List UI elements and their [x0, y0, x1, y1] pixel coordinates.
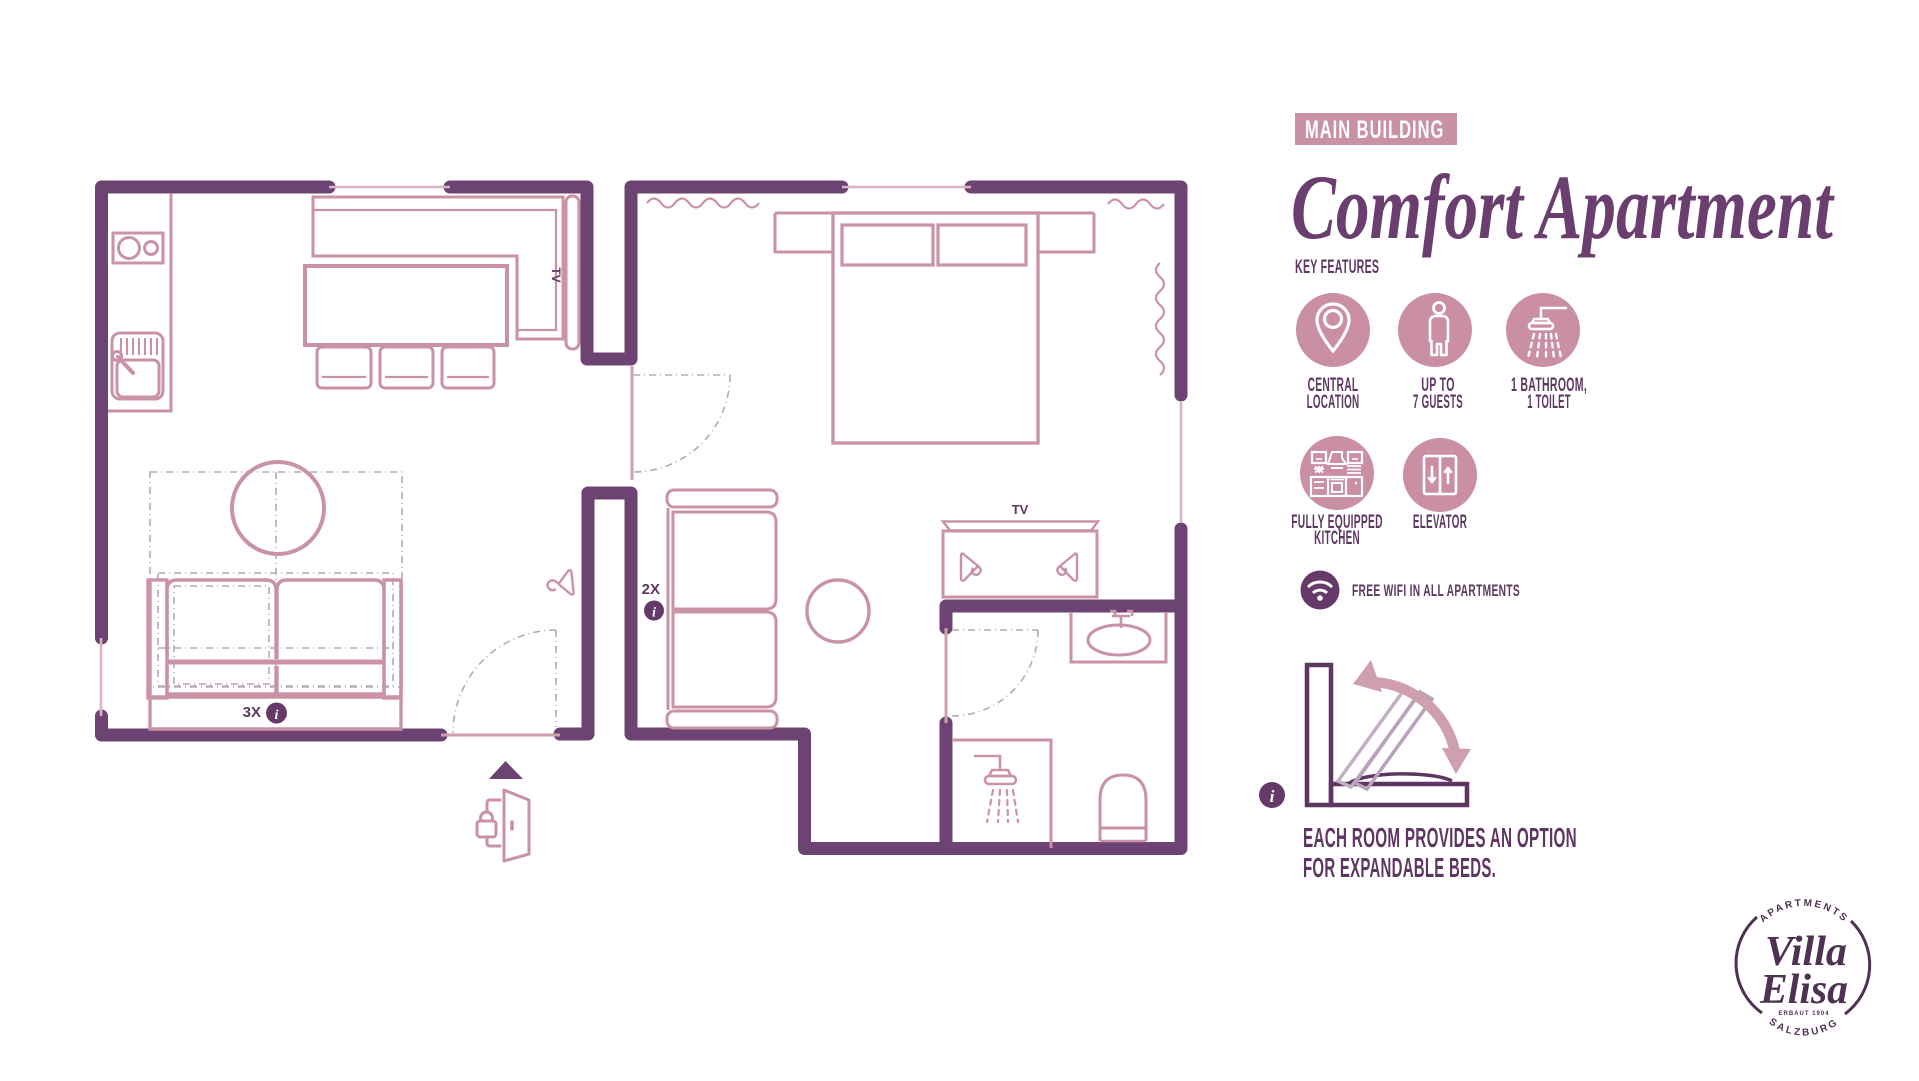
- svg-text:APARTMENTS: APARTMENTS: [1758, 898, 1851, 925]
- svg-text:i: i: [1270, 787, 1275, 806]
- svg-text:2X: 2X: [642, 581, 660, 598]
- svg-text:ELEVATOR: ELEVATOR: [1413, 512, 1467, 533]
- svg-text:KEY FEATURES: KEY FEATURES: [1295, 257, 1379, 278]
- svg-text:Elisa: Elisa: [1759, 967, 1848, 1013]
- svg-text:ERBAUT 1904: ERBAUT 1904: [1778, 1011, 1829, 1017]
- svg-text:TV: TV: [1012, 502, 1029, 517]
- svg-text:7 GUESTS: 7 GUESTS: [1413, 392, 1463, 413]
- svg-text:LOCATION: LOCATION: [1307, 392, 1360, 413]
- svg-text:Comfort Apartment: Comfort Apartment: [1291, 156, 1835, 258]
- svg-text:MAIN BUILDING: MAIN BUILDING: [1305, 117, 1444, 144]
- svg-text:1 TOILET: 1 TOILET: [1527, 392, 1571, 414]
- svg-text:KITCHEN: KITCHEN: [1314, 528, 1360, 549]
- svg-text:FOR EXPANDABLE BEDS.: FOR EXPANDABLE BEDS.: [1303, 852, 1496, 883]
- svg-text:SALZBURG: SALZBURG: [1767, 1016, 1841, 1038]
- svg-text:3X: 3X: [243, 704, 261, 721]
- svg-text:i: i: [275, 708, 279, 723]
- svg-text:i: i: [652, 606, 656, 621]
- svg-text:TV: TV: [549, 267, 563, 282]
- svg-text:EACH ROOM PROVIDES AN OPTION: EACH ROOM PROVIDES AN OPTION: [1303, 822, 1577, 853]
- svg-text:FREE WIFI IN ALL APARTMENTS: FREE WIFI IN ALL APARTMENTS: [1352, 582, 1520, 600]
